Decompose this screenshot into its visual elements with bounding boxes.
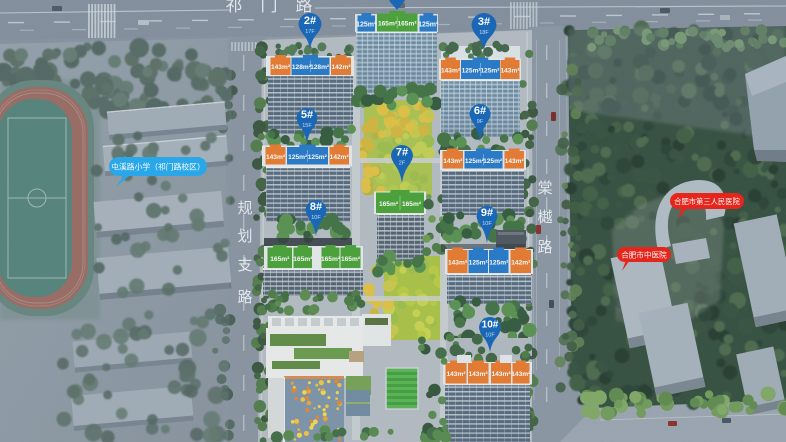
svg-text:17F: 17F (305, 29, 315, 35)
svg-text:8#: 8# (310, 201, 322, 213)
svg-text:9#: 9# (481, 207, 493, 219)
svg-text:5#: 5# (301, 109, 313, 121)
svg-text:路: 路 (296, 0, 313, 15)
svg-text:9F: 9F (477, 119, 484, 125)
svg-text:7#: 7# (396, 147, 408, 159)
svg-text:支: 支 (237, 257, 252, 274)
svg-text:屯溪路小学（祁门路校区）: 屯溪路小学（祁门路校区） (111, 162, 205, 172)
svg-text:18F: 18F (479, 30, 489, 36)
svg-text:15F: 15F (302, 123, 312, 129)
svg-text:10F: 10F (482, 221, 492, 227)
svg-text:祁: 祁 (226, 0, 243, 15)
svg-text:路: 路 (537, 239, 552, 256)
svg-text:10#: 10# (482, 320, 499, 331)
svg-text:路: 路 (237, 289, 252, 306)
svg-text:划: 划 (237, 228, 252, 245)
svg-text:樾: 樾 (537, 208, 552, 226)
svg-text:6#: 6# (474, 105, 486, 117)
svg-text:2F: 2F (399, 161, 406, 167)
svg-text:合肥市中医院: 合肥市中医院 (621, 250, 667, 260)
svg-text:10F: 10F (485, 333, 495, 339)
svg-text:合肥市第三人民医院: 合肥市第三人民医院 (674, 197, 740, 206)
svg-text:规: 规 (237, 200, 252, 217)
svg-text:棠: 棠 (537, 180, 552, 197)
svg-text:门: 门 (261, 0, 278, 15)
svg-text:10F: 10F (311, 215, 321, 221)
svg-text:3#: 3# (478, 16, 490, 28)
svg-text:2#: 2# (304, 15, 316, 27)
